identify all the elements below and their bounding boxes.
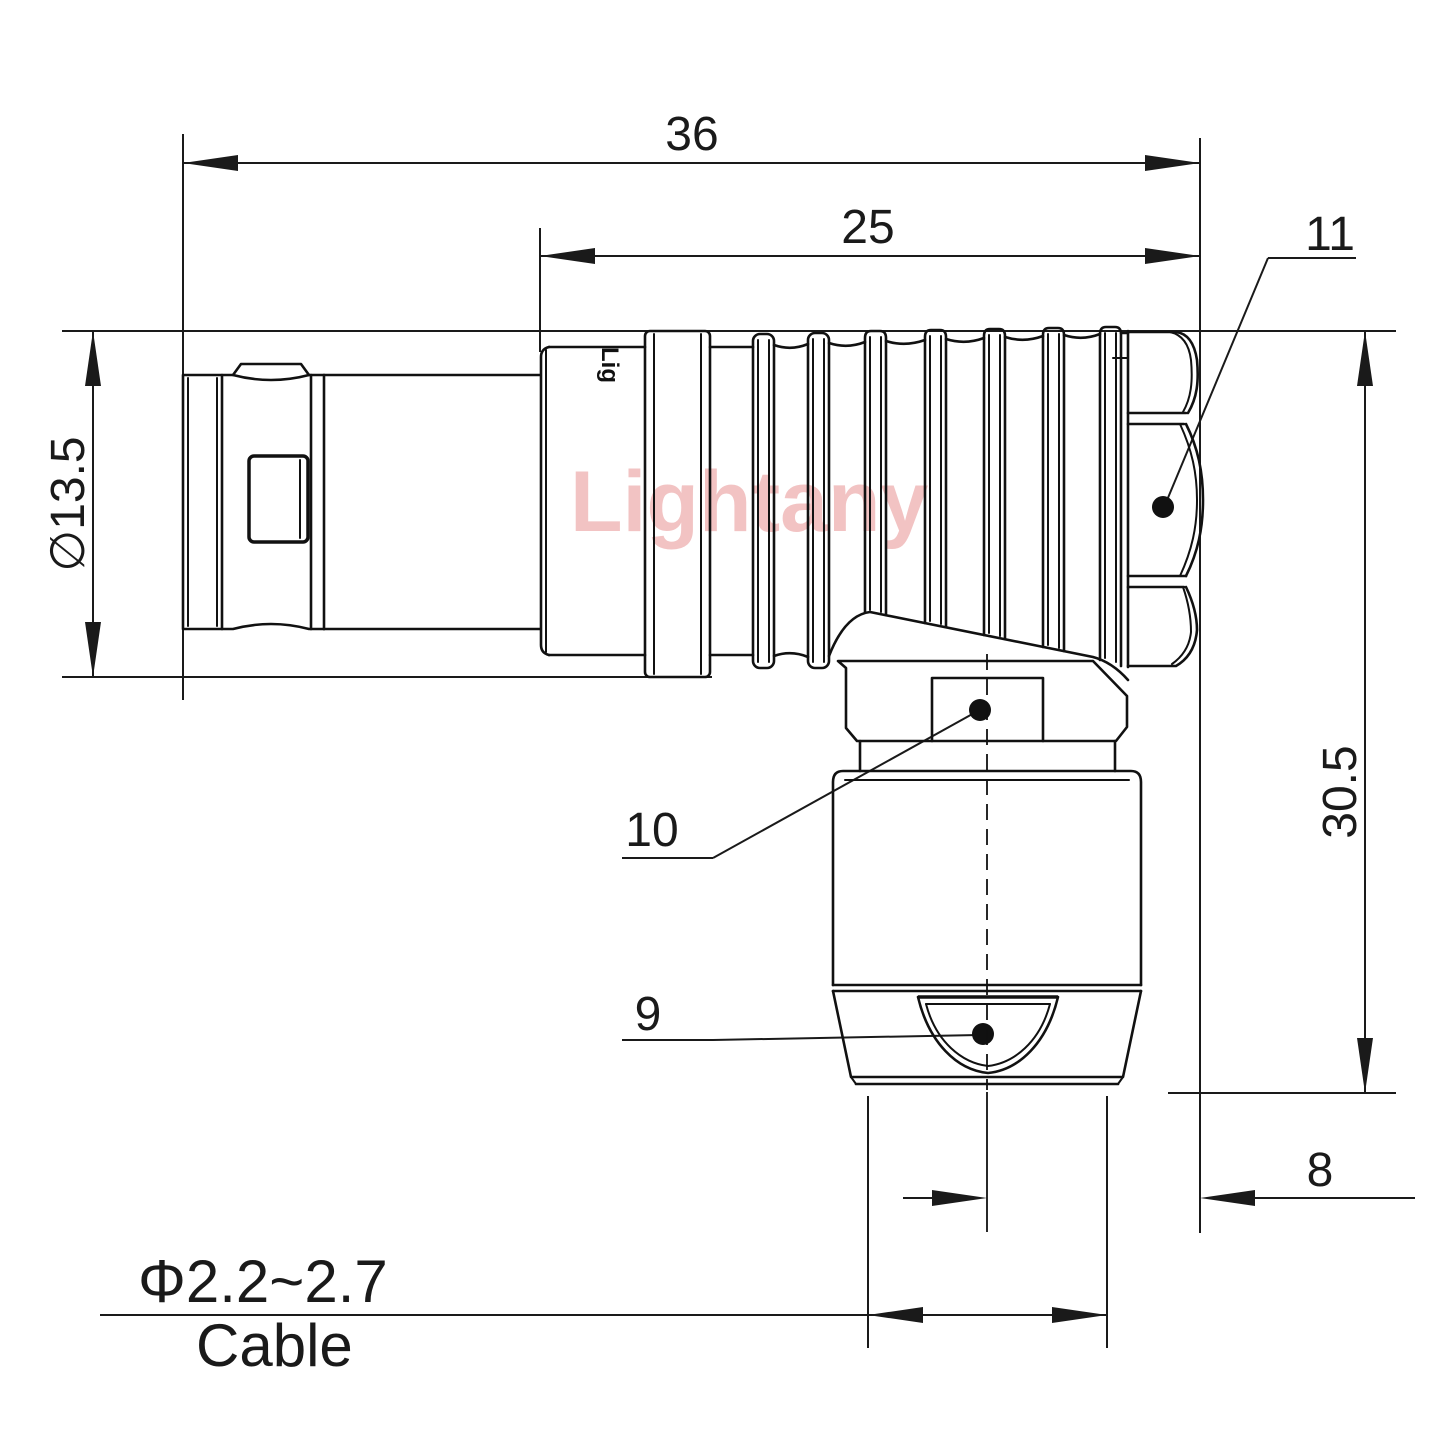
ribbed-strain-relief — [753, 327, 1128, 680]
dim-front-diameter-value: ∅13.5 — [42, 436, 95, 571]
callout-11-dot — [1152, 496, 1174, 518]
dim-cable: Φ2.2~2.7 Cable — [100, 1248, 1107, 1379]
callout-10-value: 10 — [625, 804, 678, 857]
dim-total-height-value: 30.5 — [1314, 745, 1367, 838]
brand-mark: Lig — [596, 347, 623, 383]
extension-lines — [62, 134, 1396, 1348]
dim-nut-width-value: 8 — [1307, 1144, 1334, 1197]
callout-9-value: 9 — [635, 988, 662, 1041]
dim-front-diameter: ∅13.5 — [42, 331, 101, 677]
callout-10-gland-nut: 10 — [622, 699, 991, 858]
dim-cable-label: Cable — [196, 1312, 353, 1379]
dim-total-length: 36 — [183, 108, 1200, 171]
dim-total-height: 30.5 — [1314, 331, 1373, 1093]
dim-nut-width: 8 — [903, 1144, 1415, 1206]
dim-cable-diameter-value: Φ2.2~2.7 — [138, 1248, 388, 1315]
dim-rear-length: 25 — [540, 201, 1200, 264]
connector-plug-body — [183, 364, 540, 629]
callout-11-value: 11 — [1305, 208, 1355, 261]
callout-9-dot — [972, 1023, 994, 1045]
technical-drawing-canvas: Lightany 36 25 ∅13.5 30.5 — [0, 0, 1440, 1440]
dim-rear-length-value: 25 — [841, 201, 894, 254]
watermark: Lightany — [570, 454, 928, 550]
dim-total-length-value: 36 — [665, 108, 718, 161]
